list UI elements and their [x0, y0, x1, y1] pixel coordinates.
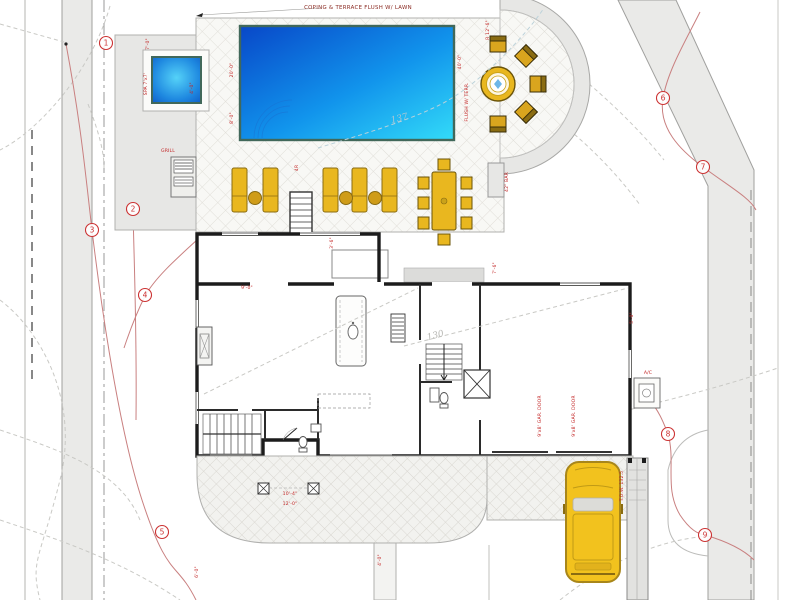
house — [196, 233, 632, 458]
entry-walkway — [197, 456, 487, 543]
keynote-number: 9 — [703, 531, 708, 540]
dimension-text: 42" BAR — [504, 171, 510, 192]
lounge-chair — [382, 168, 397, 212]
dimension-text: R 12'-6" — [485, 20, 491, 40]
terrace-note-group: COPING & TERRACE FLUSH W/ LAWN — [196, 5, 412, 17]
dimension-text: 9'x8' GAR. DOOR — [571, 395, 577, 437]
side-table — [369, 192, 382, 205]
threshold-step — [404, 268, 484, 282]
patio-chair — [530, 76, 546, 92]
dimension-text: 12'-0" — [283, 501, 298, 507]
garden-path — [374, 543, 396, 600]
patio-chair — [490, 36, 506, 52]
kitchen-island — [336, 296, 366, 366]
terrace-note: COPING & TERRACE FLUSH W/ LAWN — [304, 5, 412, 11]
dimension-text: 9'-0" — [241, 285, 253, 291]
keynote-number: 2 — [131, 205, 136, 214]
shower — [464, 370, 490, 398]
dimension-text: 9'x8' GAR. DOOR — [537, 395, 543, 437]
dimension-text: A/C — [644, 370, 652, 376]
dining-chair — [461, 217, 472, 229]
site-plan: COPING & TERRACE FLUSH W/ LAWN 137130 20… — [0, 0, 800, 600]
side-table — [249, 192, 262, 205]
dining-chair — [461, 177, 472, 189]
dimension-text: 5'-0" — [629, 312, 635, 324]
dimension-text: GRILL — [161, 148, 175, 154]
swimming-pool — [240, 26, 454, 140]
keynote-number: 8 — [666, 430, 671, 439]
dimension-text: 4'-0" — [189, 82, 195, 94]
ac-unit — [634, 378, 660, 408]
survey-point — [64, 42, 67, 45]
dimension-text: 40'-0" — [457, 55, 463, 70]
dining-chair — [461, 197, 472, 209]
car-windshield — [573, 498, 613, 511]
dimension-text: 6'-0" — [194, 566, 200, 578]
keynote-number: 5 — [160, 528, 165, 537]
fireplace — [197, 327, 212, 365]
terrace-stairs — [290, 192, 312, 234]
dining-chair — [438, 159, 450, 170]
lounge-chair — [263, 168, 278, 212]
keynote-number: 4 — [143, 291, 148, 300]
dining-chair — [418, 177, 429, 189]
range — [391, 314, 405, 342]
sink — [348, 325, 358, 339]
car-roof — [573, 514, 613, 560]
car-rear-window — [575, 563, 611, 570]
dimension-text: 7'-0" — [145, 38, 151, 50]
dimension-text: 3'-6" — [329, 237, 335, 249]
lounge-chair — [352, 168, 367, 212]
dimension-text: 4R — [294, 164, 300, 171]
retaining-wall — [627, 458, 648, 600]
keynote-number: 1 — [104, 39, 109, 48]
dimension-text: 20'-0" — [229, 63, 235, 78]
dimension-text: SPA 7'x7' — [143, 73, 149, 95]
left-road — [25, 0, 104, 600]
dimension-text: 10'-4" — [283, 491, 298, 497]
keynote-number: 3 — [90, 226, 95, 235]
patio-chair — [490, 116, 506, 132]
lounge-chair — [323, 168, 338, 212]
site-plan-drawing: COPING & TERRACE FLUSH W/ LAWN 137130 20… — [0, 0, 800, 600]
dimension-text: T.O.W. 132.5 — [619, 471, 625, 503]
side-table — [340, 192, 353, 205]
dining-chair — [438, 234, 450, 245]
dimension-text: 8'-0" — [229, 112, 235, 124]
lounge-chair — [232, 168, 247, 212]
keynote-number: 7 — [701, 163, 706, 172]
bar-counter — [488, 163, 504, 197]
dining-chair — [418, 217, 429, 229]
grill — [171, 157, 196, 197]
dining-chair — [418, 197, 429, 209]
dimension-text: FLUSH W/ TERR. — [464, 82, 470, 121]
dimension-text: 7'-6" — [492, 262, 498, 274]
keynote-number: 6 — [661, 94, 666, 103]
house-footprint — [197, 234, 630, 456]
car — [563, 462, 623, 582]
dimension-text: 4'-0" — [377, 554, 383, 566]
spa — [152, 57, 201, 103]
